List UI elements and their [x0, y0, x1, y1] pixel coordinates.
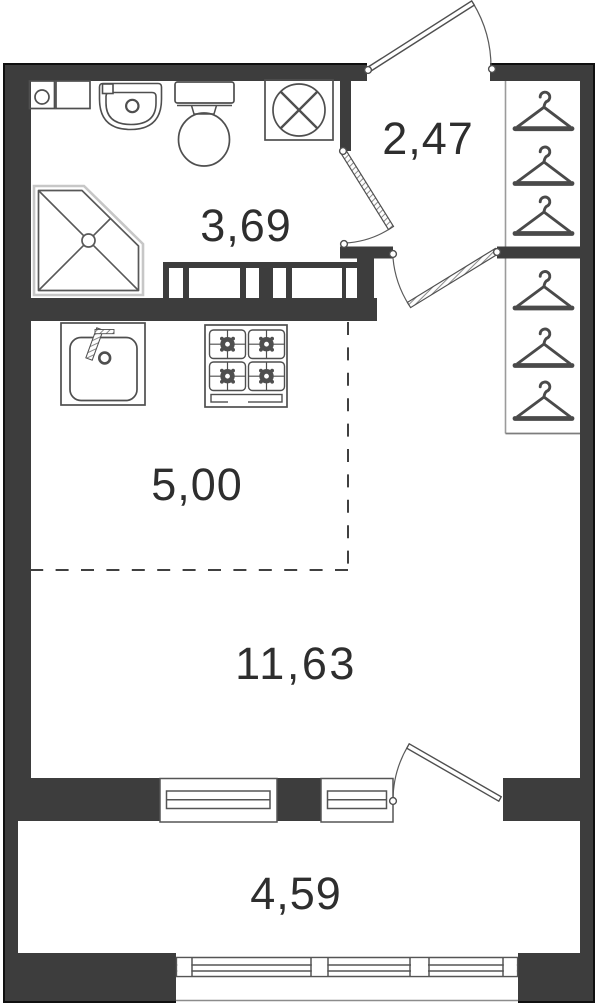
svg-text:3,69: 3,69: [200, 200, 292, 251]
svg-text:2,47: 2,47: [382, 113, 474, 164]
svg-text:11,63: 11,63: [235, 638, 357, 689]
svg-text:4,59: 4,59: [250, 868, 342, 919]
svg-text:5,00: 5,00: [151, 459, 243, 510]
